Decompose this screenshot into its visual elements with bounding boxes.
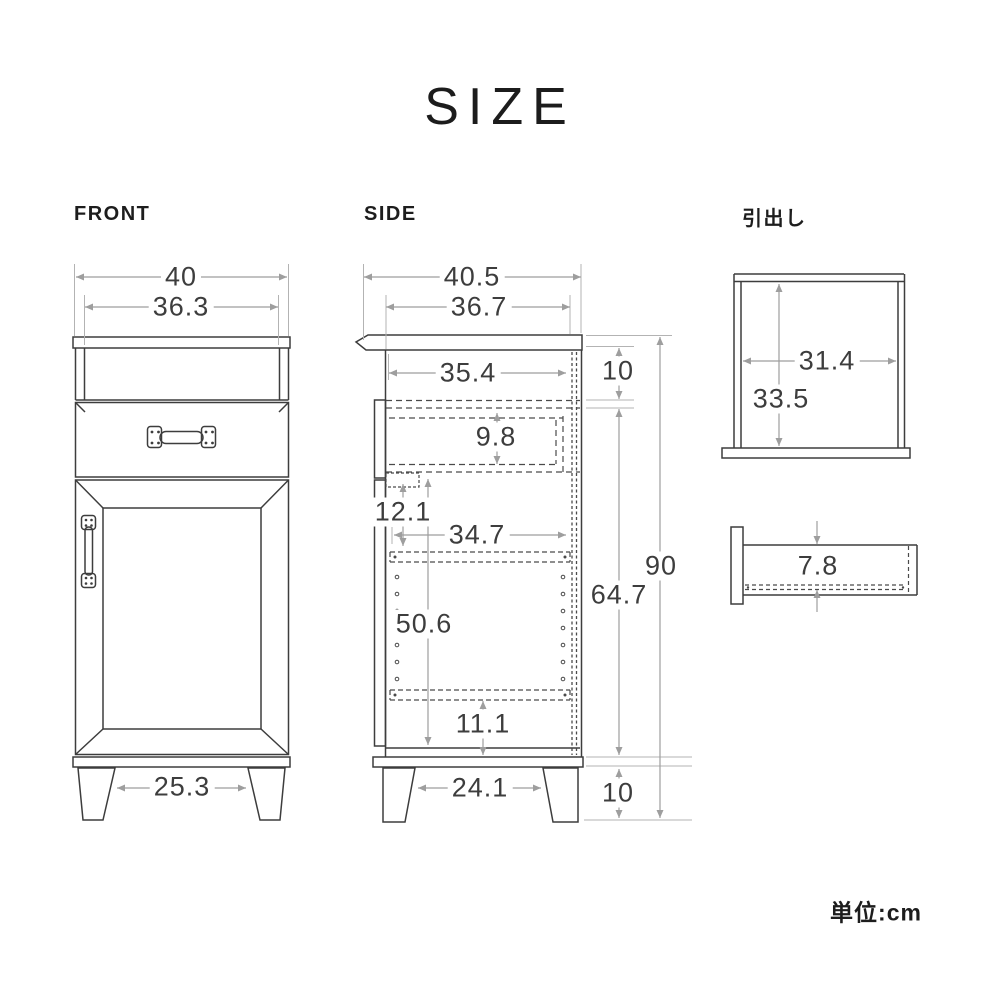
side-drawer-front [375,400,386,478]
front-base-strip [73,757,290,767]
front-view-drawing [73,337,290,820]
door-handle [82,516,96,588]
dim-side-overall-depth: 40.5 [440,263,505,292]
dim-side-top-shelf-height: 10 [598,357,638,386]
side-view-hidden-lines [386,352,580,755]
dim-drawer-inner-depth: 33.5 [749,385,814,414]
dim-side-door-top-offset: 12.1 [371,498,436,527]
unit-label: 単位:cm [830,902,922,925]
dim-side-overall-height: 90 [641,552,681,581]
side-front-leg [383,768,415,822]
front-drawer-face [76,403,289,478]
dim-side-door-cavity-height: 50.6 [392,610,457,639]
dim-front-body-width: 36.3 [149,293,214,322]
front-door [76,480,289,755]
page-title: SIZE [424,81,576,133]
cabinet-dimension-drawing [0,0,1000,1000]
dim-drawer-inner-height: 7.8 [794,552,843,581]
dim-side-leg-height: 10 [598,779,638,808]
side-base-strip [373,757,583,767]
front-view-label: FRONT [74,204,150,224]
drawer-view-label: 引出し [742,209,807,229]
front-left-leg [78,768,115,820]
dim-drawer-inner-width: 31.4 [795,347,860,376]
front-right-leg [248,768,285,820]
dim-front-overall-width: 40 [161,263,201,292]
dim-side-drawer-cavity-height: 9.8 [472,423,521,452]
dim-side-inner-depth: 35.4 [436,359,501,388]
drawer-front-panel-top [722,448,910,458]
dim-side-body-height: 64.7 [587,581,652,610]
dim-side-top-depth: 36.7 [447,293,512,322]
dim-front-leg-span: 25.3 [150,773,215,802]
side-top-panel [356,335,582,350]
dim-side-bottom-offset: 11.1 [452,710,515,739]
dim-side-leg-span: 24.1 [448,774,513,803]
front-top-panel [73,337,290,348]
side-back-leg [543,768,578,822]
drawer-handle [148,427,216,448]
drawer-front-panel-side [731,527,743,604]
dim-side-shelf-depth: 34.7 [445,521,510,550]
size-diagram-page: SIZE FRONT SIDE 引出し 40 36.3 25.3 40.5 36… [0,0,1000,1000]
side-view-label: SIDE [364,204,417,224]
